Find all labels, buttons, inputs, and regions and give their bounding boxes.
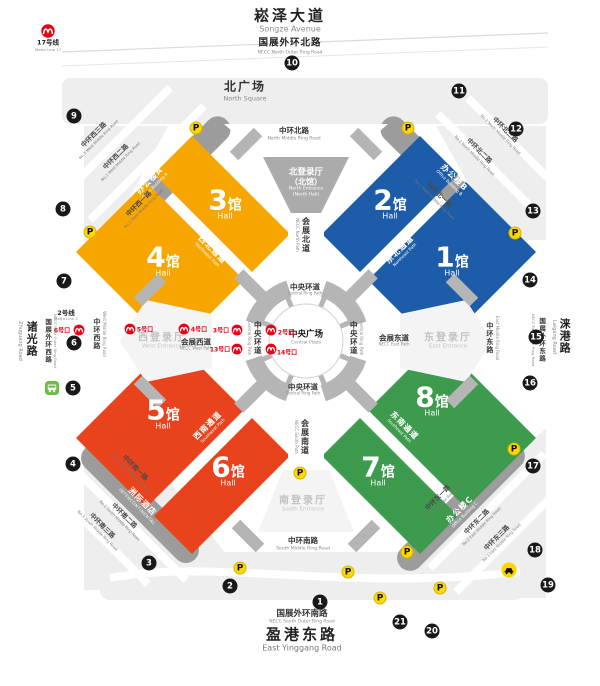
- road-label-south-mid-zh: 中环南路: [288, 537, 318, 545]
- north-entrance-label: 北登录厅 （北馆） North Entrance (North Hall): [289, 169, 323, 198]
- gate-9: 9: [67, 109, 82, 124]
- parking-icon: P: [294, 467, 307, 480]
- road-label-west-outer-en: NECC West Outer Ring Road: [53, 314, 57, 368]
- road-label-yinggang-en: East Yinggang Road: [262, 645, 342, 654]
- metro-exit3-label: 3号口: [213, 326, 229, 335]
- gate-2: 2: [223, 579, 238, 594]
- ring-label-right-zh: 中央环道: [349, 321, 357, 355]
- parking-icon: P: [374, 592, 387, 605]
- road-label-north-mid-zh: 中环北路: [279, 127, 309, 135]
- hall-3-label: 3馆 Hall: [208, 184, 241, 221]
- gate-18: 18: [528, 543, 543, 558]
- hall-8-label: 8馆 Hall: [415, 381, 448, 418]
- road-label-north-mid-en: North Middle Ring Road: [267, 136, 320, 141]
- road-label-west-mid-zh: 中环西路: [92, 318, 100, 350]
- bus-icon: [45, 381, 59, 395]
- road-label-songze-en: Songze Avenue: [259, 26, 321, 35]
- ring-label-left-en: Central Ring Path: [247, 321, 251, 356]
- gate-4: 4: [66, 457, 81, 472]
- gate-17: 17: [526, 459, 541, 474]
- taxi-icon: [501, 562, 517, 578]
- area-label-north-square-zh: 北广场: [224, 80, 266, 93]
- metro-logo-exit4-icon: [178, 323, 190, 335]
- central-plaza-label: 中央广场 Central Plaza: [289, 331, 323, 346]
- gate-20: 20: [425, 624, 440, 639]
- road-label-east-mid-en: East Middle Ring Road: [495, 316, 499, 361]
- metro-logo-exit6-icon: [73, 324, 85, 336]
- east-entrance-label: 东登录厅 East Entrance: [424, 332, 472, 349]
- metro-exit5-label: 5号口: [137, 325, 153, 334]
- parking-icon: P: [401, 546, 414, 559]
- parking-icon: P: [84, 226, 97, 239]
- road-label-south-outer-zh: 国展外环南路: [276, 610, 327, 620]
- metro-line17-label-en: Metro Line 17: [35, 48, 61, 52]
- gate-11: 11: [452, 84, 467, 99]
- parking-icon: P: [402, 122, 415, 135]
- south-entrance-label: 南登录厅 South Entrance: [279, 495, 327, 512]
- hall-1-label: 1馆 Hall: [435, 241, 468, 278]
- road-label-zhuguang-zh: 诸光路: [25, 321, 37, 357]
- metro-logo-exit5-icon: [124, 323, 136, 335]
- area-label-north-square-en: North Square: [223, 95, 266, 102]
- hall-7-label: 7馆 Hall: [361, 451, 394, 488]
- metro-exit14-label: 14号口: [277, 348, 297, 357]
- gate-5: 5: [66, 381, 81, 396]
- gate-12: 12: [509, 122, 524, 137]
- gate-14: 14: [523, 273, 538, 288]
- ring-label-top: 中央环道 Central Ring Path: [288, 284, 323, 297]
- road-label-songze-zh: 崧泽大道: [254, 8, 326, 25]
- metro-logo-exit14-icon: [265, 343, 277, 355]
- ring-label-right-en: Central Ring Path: [359, 321, 363, 356]
- path-label-necc-north-zh: 会展北道: [301, 217, 310, 253]
- necc-map: 崧泽大道 Songze Avenue 国展外环北路 NECC North Out…: [0, 0, 600, 686]
- metro-exit4-label: 4号口: [191, 325, 207, 334]
- path-label-necc-east: 会展东道 NECC East Path: [378, 335, 409, 348]
- hall-2-label: 2馆 Hall: [373, 184, 406, 221]
- road-label-south-outer-en: NECC South Outer Ring Road: [269, 619, 334, 624]
- road-label-laigang-en: Laigang Road: [550, 320, 556, 354]
- metro-logo-line17-icon: [41, 24, 56, 39]
- gate-15: 15: [529, 330, 544, 345]
- parking-icon: P: [508, 443, 521, 456]
- road-label-yinggang-zh: 盈港东路: [266, 627, 338, 644]
- road-label-west-mid-en: West Middle Ring Road: [102, 311, 106, 357]
- metro-logo-exit13-icon: [231, 343, 243, 355]
- road-label-east-mid-zh: 中环东路: [485, 322, 493, 354]
- metro-line17-label-zh: 17号线: [37, 39, 59, 46]
- metro-exit2-label: 2号口: [278, 328, 294, 337]
- gate-6: 6: [67, 336, 82, 351]
- parking-icon: P: [509, 227, 522, 240]
- gate-8: 8: [56, 202, 71, 217]
- metro-logo-exit3-icon: [231, 324, 243, 336]
- path-label-necc-north-en: NECC North Path: [295, 218, 299, 252]
- path-label-necc-south-zh: 会展南道: [300, 419, 309, 455]
- road-label-north-outer-zh: 国展外环北路: [258, 39, 321, 50]
- ring-label-left-zh: 中央环道: [253, 321, 261, 355]
- road-label-west-outer-zh: 国展外环西路: [43, 319, 50, 364]
- path-label-necc-west: 会展西道 NECC West Path: [180, 339, 212, 352]
- parking-icon: P: [234, 562, 247, 575]
- gate-1: 1: [313, 595, 328, 610]
- road-label-south-mid-en: South Middle Ring Road: [276, 546, 330, 551]
- gate-3: 3: [142, 556, 157, 571]
- hall-5-label: 5馆 Hall: [146, 394, 179, 431]
- parking-icon: P: [190, 122, 203, 135]
- hall-6-label: 6馆 Hall: [211, 451, 244, 488]
- parking-icon: P: [342, 566, 355, 579]
- gate-10: 10: [285, 56, 300, 71]
- gate-19: 19: [541, 578, 556, 593]
- gate-16: 16: [523, 376, 538, 391]
- path-label-necc-south-en: NECC South Path: [294, 420, 298, 454]
- road-label-zhuguang-en: Zhuguang Road: [16, 321, 22, 361]
- gate-7: 7: [57, 274, 72, 289]
- gate-21: 21: [393, 615, 408, 630]
- metro-logo-exit2-icon: [265, 324, 277, 336]
- road-label-laigang-zh: 涞港路: [558, 318, 570, 354]
- gate-13: 13: [526, 204, 541, 219]
- metro-exit13-label: 13号口: [210, 345, 230, 354]
- hall-4-label: 4馆 Hall: [146, 241, 179, 278]
- ring-label-bottom: 中央环道 Central Ring Path: [286, 384, 321, 397]
- parking-icon: P: [434, 582, 447, 595]
